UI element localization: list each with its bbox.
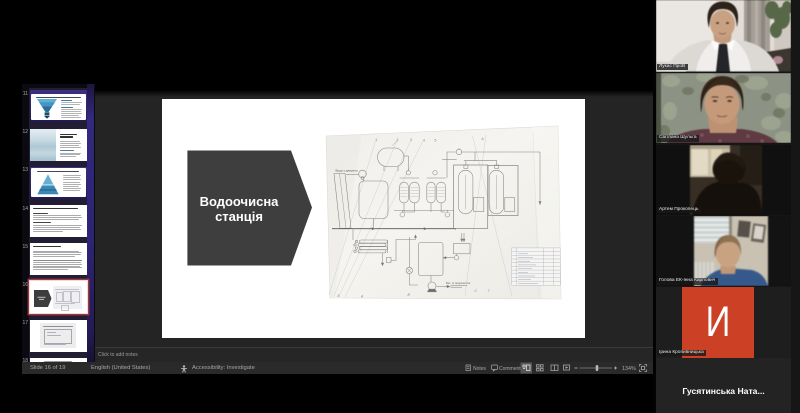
svg-text:2: 2 [397,138,399,142]
svg-text:1: 1 [376,138,378,142]
svg-text:3: 3 [410,138,412,142]
svg-text:134%: 134% [622,366,636,372]
svg-text:Comments: Comments [499,366,524,372]
svg-text:5: 5 [435,139,437,143]
svg-text:Вих. от водоочистки: Вих. от водоочистки [446,281,471,285]
svg-text:Вода з джерела: Вода з джерела [336,169,358,173]
svg-text:Notes: Notes [473,366,487,372]
svg-text:7: 7 [488,289,490,293]
svg-text:4: 4 [423,139,425,143]
